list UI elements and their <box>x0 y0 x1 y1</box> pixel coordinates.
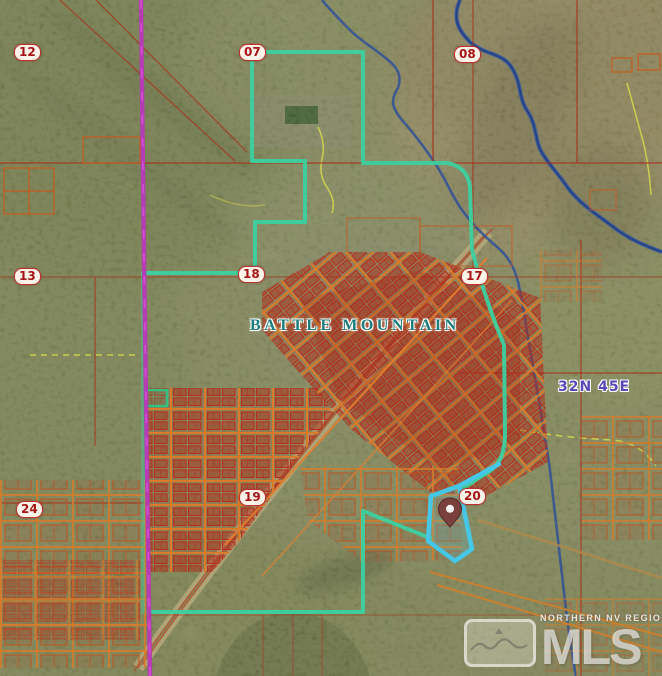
mls-logo-emblem <box>464 619 536 667</box>
section-label-18: 18 <box>238 266 265 283</box>
section-label-24: 24 <box>16 501 43 518</box>
map-pin[interactable] <box>437 496 463 530</box>
map-canvas[interactable] <box>0 0 662 676</box>
annexed-parcel-outline <box>145 390 167 406</box>
mountain-squiggle-icon <box>471 639 527 650</box>
peak-icon <box>495 628 503 634</box>
section-label-12: 12 <box>14 44 41 61</box>
pin-center-dot <box>446 505 454 513</box>
section-label-08: 08 <box>454 46 481 63</box>
place-label: BATTLE MOUNTAIN <box>250 317 460 335</box>
section-label-20: 20 <box>459 488 486 505</box>
section-label-19: 19 <box>239 489 266 506</box>
township-range-label: 32N 45E <box>558 379 630 395</box>
section-label-07: 07 <box>239 44 266 61</box>
mls-logo-text: MLS <box>541 618 641 676</box>
section-label-13: 13 <box>14 268 41 285</box>
section-label-17: 17 <box>461 268 488 285</box>
parcel-map-view[interactable]: 121324071819081720 BATTLE MOUNTAIN 32N 4… <box>0 0 662 676</box>
